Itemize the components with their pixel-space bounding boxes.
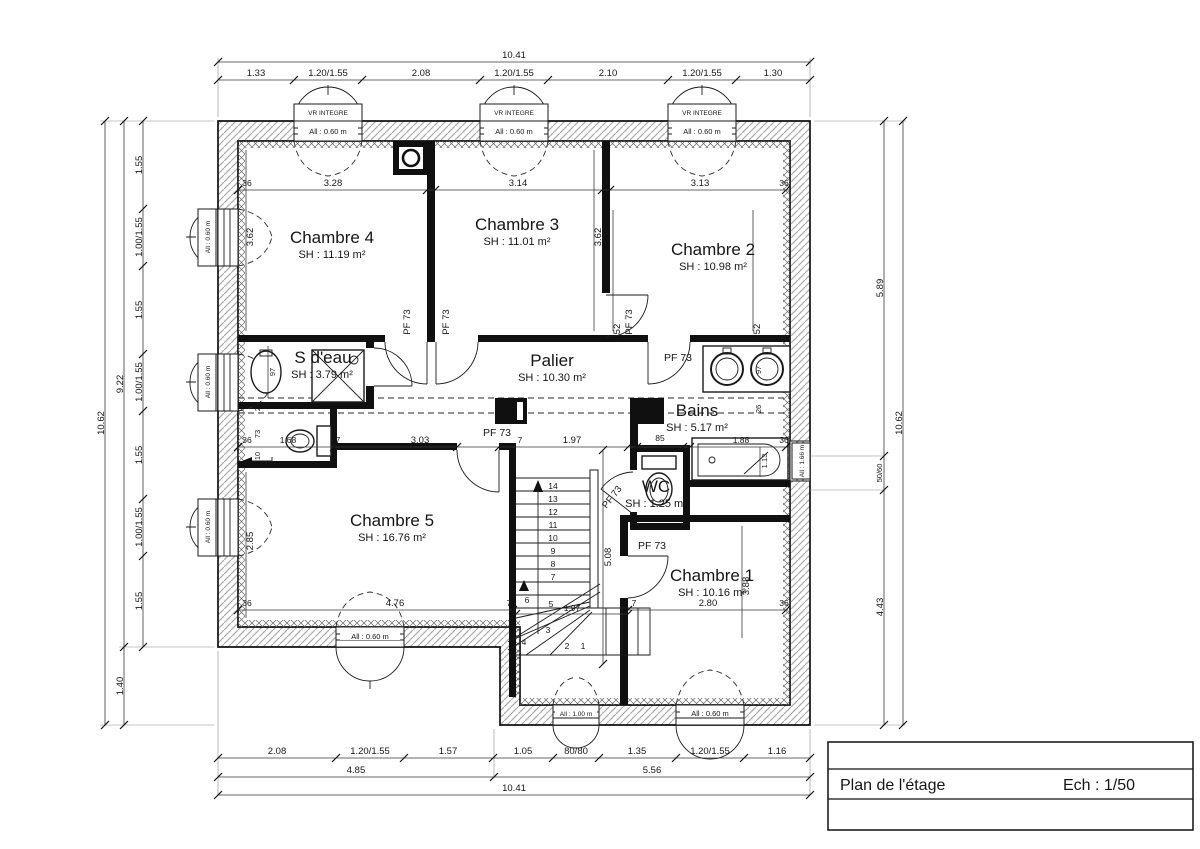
insulation-band-right bbox=[783, 148, 790, 705]
dim-label: 1.20/1.55 bbox=[308, 68, 348, 79]
dim-label: 1.00/1.55 bbox=[134, 217, 145, 257]
duct-vent bbox=[517, 402, 523, 420]
shutter-label: VR INTEGRE bbox=[682, 110, 722, 117]
dim-label: 2.85 bbox=[245, 532, 256, 551]
dim-label: 1.13 bbox=[760, 454, 769, 469]
window-left-1: All : 0.60 m bbox=[198, 209, 238, 266]
dim-label: 2.08 bbox=[268, 746, 287, 757]
room-area: SH : 1.25 m² bbox=[625, 498, 687, 510]
dim-label: 10 bbox=[253, 452, 262, 460]
dim-subtotal: 9.22 bbox=[115, 375, 126, 394]
shutter-label: VR INTEGRE bbox=[494, 110, 534, 117]
dim-label: 36 bbox=[779, 435, 789, 445]
door-label: PF 73 bbox=[483, 427, 511, 439]
room-area: SH : 5.17 m² bbox=[666, 422, 728, 434]
room-name: Chambre 3 bbox=[475, 215, 559, 234]
dim-label: 5.08 bbox=[603, 548, 614, 567]
double-sink-icon bbox=[703, 346, 790, 392]
dim-label: 26 bbox=[253, 403, 262, 411]
dim-label: 73 bbox=[253, 430, 262, 438]
dim-label: 36 bbox=[779, 178, 789, 188]
step-number: 10 bbox=[548, 533, 558, 543]
step-number: 11 bbox=[549, 520, 558, 530]
dim-label: 1.55 bbox=[134, 156, 145, 175]
room-area: SH : 11.19 m² bbox=[298, 249, 365, 261]
step-number: 7 bbox=[551, 572, 556, 582]
dim-label: 2.80 bbox=[699, 598, 718, 609]
window-sill-label: All : 0.60 m bbox=[205, 221, 212, 254]
flue-icon bbox=[393, 141, 429, 175]
dim-label: 7 bbox=[605, 178, 610, 188]
dim-label: 2.08 bbox=[412, 68, 431, 79]
step-number: 2 bbox=[565, 641, 570, 651]
room-name: Chambre 1 bbox=[670, 566, 754, 585]
window-sill-label: All : 1.00 m bbox=[560, 711, 593, 718]
dim-label: 1.35 bbox=[628, 746, 647, 757]
step-number: 13 bbox=[548, 494, 558, 504]
door-label: PF 73 bbox=[402, 309, 413, 334]
window-sill-label: All : 0.60 m bbox=[691, 709, 729, 718]
dim-label: 36 bbox=[242, 598, 252, 608]
window-top-2: All : 0.60 m bbox=[480, 121, 548, 141]
plan-title: Plan de l'étage bbox=[840, 777, 945, 794]
dim-label: 7 bbox=[518, 435, 523, 445]
step-number: 12 bbox=[548, 507, 558, 517]
window-sill-label: All : 0.60 m bbox=[205, 366, 212, 399]
dim-label: 1.55 bbox=[134, 301, 145, 320]
step-number: 8 bbox=[551, 559, 556, 569]
dim-label: 1.20/1.55 bbox=[494, 68, 534, 79]
dim-label: 1.00/1.55 bbox=[134, 362, 145, 402]
insulation-band-top bbox=[238, 141, 790, 148]
window-sill-label: All : 0.60 m bbox=[309, 127, 347, 136]
step-number: 9 bbox=[551, 546, 556, 556]
room-name: S d'eau bbox=[294, 348, 351, 367]
dim-label: 7 bbox=[336, 435, 341, 445]
dim-label: 3.14 bbox=[509, 178, 528, 189]
dim-label: 1.05 bbox=[514, 746, 533, 757]
room-area: SH : 10.98 m² bbox=[679, 261, 747, 273]
window-sill-label: All : 0.60 m bbox=[683, 127, 721, 136]
dim-label: 1.97 bbox=[564, 603, 581, 613]
dim-label: 3.62 bbox=[245, 228, 256, 247]
dim-label: 7 bbox=[507, 598, 512, 608]
dim-total: 10.41 bbox=[502, 783, 526, 794]
window-left-3: All : 0.60 m bbox=[198, 499, 238, 556]
dim-label: 97 bbox=[754, 366, 763, 374]
dim-label: 1.20/1.55 bbox=[690, 746, 730, 757]
step-number: 5 bbox=[549, 599, 554, 609]
dim-label: 5.89 bbox=[875, 279, 886, 298]
dim-label: 3.52 bbox=[612, 324, 623, 343]
dim-subtotal: 1.40 bbox=[115, 677, 126, 696]
plan-scale: Ech : 1/50 bbox=[1063, 777, 1135, 794]
window-sill-label: All : 0.60 m bbox=[205, 511, 212, 544]
room-name: Bains bbox=[676, 401, 719, 420]
dim-label: 80/80 bbox=[564, 746, 588, 757]
dim-label: 50/60 bbox=[875, 464, 884, 483]
title-block: Plan de l'étage Ech : 1/50 bbox=[828, 742, 1193, 830]
dim-label: 7 bbox=[429, 178, 434, 188]
dim-label: 1.16 bbox=[768, 746, 787, 757]
dim-label: 3.03 bbox=[411, 435, 430, 446]
dim-label: 7 bbox=[632, 598, 637, 608]
dim-subtotal: 5.56 bbox=[643, 765, 662, 776]
window-top-3: All : 0.60 m bbox=[668, 121, 736, 141]
dim-label: 3.13 bbox=[691, 178, 710, 189]
dim-label: 1.00/1.55 bbox=[134, 507, 145, 547]
room-area: SH : 10.30 m² bbox=[518, 372, 586, 384]
room-area: SH : 16.76 m² bbox=[358, 532, 426, 544]
step-number: 4 bbox=[522, 637, 527, 647]
door-label: PF 73 bbox=[624, 309, 635, 334]
dim-label: 3.52 bbox=[752, 324, 763, 343]
dim-total: 10.62 bbox=[96, 411, 107, 435]
dim-label: 1.33 bbox=[247, 68, 266, 79]
dim-label: 1.20/1.55 bbox=[682, 68, 722, 79]
dim-label: 1.97 bbox=[563, 435, 582, 446]
dim-total: 10.41 bbox=[502, 50, 526, 61]
dim-label: 36 bbox=[242, 178, 252, 188]
dim-label: 4.43 bbox=[875, 598, 886, 617]
shutter-label: VR INTEGRE bbox=[308, 110, 348, 117]
dim-label: 2.10 bbox=[599, 68, 618, 79]
room-name: Chambre 2 bbox=[671, 240, 755, 259]
dim-label: 1.68 bbox=[280, 435, 297, 445]
dim-label: 97 bbox=[268, 368, 277, 376]
room-area: SH : 11.01 m² bbox=[483, 236, 550, 248]
dim-label: 36 bbox=[242, 435, 252, 445]
dim-label: 4.76 bbox=[386, 598, 405, 609]
door-label: PF 73 bbox=[664, 352, 692, 364]
room-area: SH : 10.16 m² bbox=[678, 587, 746, 599]
dim-label: 36 bbox=[779, 598, 789, 608]
floor-plan-drawing: VR INTEGRE VR INTEGRE VR INTEGRE All : 0… bbox=[0, 0, 1200, 849]
step-number: 14 bbox=[548, 481, 558, 491]
dim-label: 1.88 bbox=[733, 435, 750, 445]
dim-label: 1.55 bbox=[134, 592, 145, 611]
window-top-1: All : 0.60 m bbox=[294, 121, 362, 141]
step-number: 3 bbox=[546, 625, 551, 635]
dim-label: 26 bbox=[754, 405, 763, 413]
dim-label: 1.55 bbox=[134, 446, 145, 465]
window-right-bath: All : 1.66 m bbox=[790, 441, 810, 481]
duct-icon bbox=[638, 398, 664, 424]
step-number: 6 bbox=[525, 595, 530, 605]
door-label: PF 73 bbox=[638, 540, 666, 552]
step-number: 1 bbox=[581, 641, 586, 651]
dim-label: 3.62 bbox=[593, 228, 604, 247]
room-name: Palier bbox=[530, 351, 574, 370]
room-area: SH : 3.79 m² bbox=[291, 369, 353, 381]
dim-subtotal: 4.85 bbox=[347, 765, 366, 776]
dim-total: 10.62 bbox=[894, 411, 905, 435]
door-label: PF 73 bbox=[441, 309, 452, 334]
insulation-band-left bbox=[238, 148, 245, 620]
dim-label: 1.20/1.55 bbox=[350, 746, 390, 757]
room-name: Chambre 4 bbox=[290, 228, 374, 247]
window-left-2: All : 0.60 m bbox=[198, 354, 238, 411]
dim-label: 1.57 bbox=[439, 746, 458, 757]
dim-label: 3.28 bbox=[324, 178, 343, 189]
window-sill-label: All : 0.60 m bbox=[495, 127, 533, 136]
room-name: Chambre 5 bbox=[350, 511, 434, 530]
dim-label: 1.30 bbox=[764, 68, 783, 79]
window-sill-label: All : 1.66 m bbox=[799, 445, 806, 478]
insulation-band-bottom-left bbox=[238, 620, 520, 627]
room-name: WC bbox=[642, 477, 670, 496]
window-sill-label: All : 0.60 m bbox=[351, 632, 389, 641]
dim-label: 85 bbox=[655, 433, 665, 443]
